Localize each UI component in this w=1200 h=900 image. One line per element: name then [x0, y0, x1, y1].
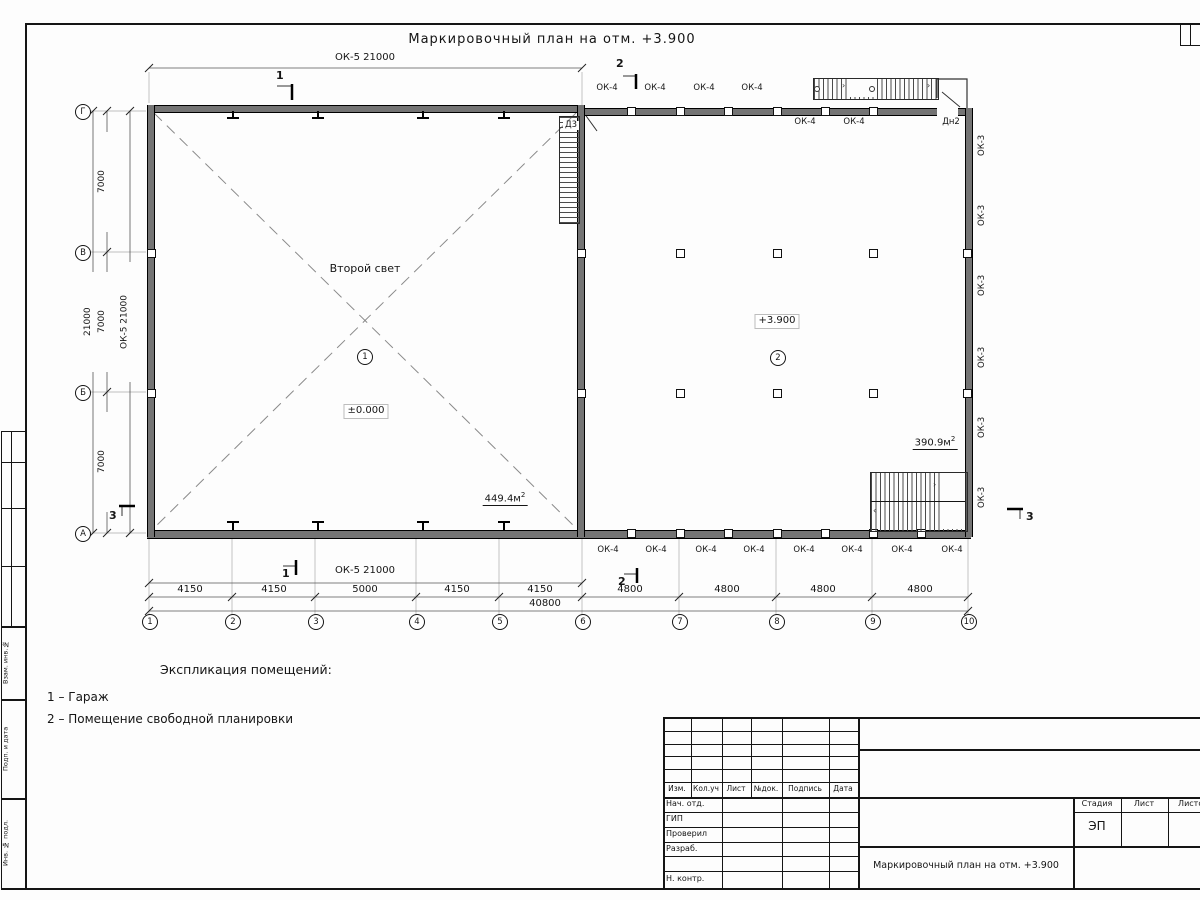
- titleblock-line: [782, 717, 783, 890]
- room2-level: +3.900: [754, 314, 799, 329]
- mullion-square: [676, 529, 685, 538]
- column-square: [577, 249, 586, 258]
- stair-external-top: [813, 78, 939, 100]
- stair-direction-arrow: ‹: [873, 507, 876, 515]
- dim-bay: 4800: [808, 585, 837, 595]
- titleblock-col-list: Лист: [726, 785, 745, 793]
- window-label-ok4: ОК-4: [843, 118, 864, 127]
- axis-bubble-col: 2: [225, 614, 241, 630]
- window-label-ok3: ОК-3: [976, 195, 988, 235]
- room1-area-sup: 2: [521, 491, 525, 499]
- column-mark: [312, 521, 324, 523]
- wall-top-right: [583, 108, 937, 116]
- titleblock-line: [1073, 797, 1075, 890]
- window-label-ok4: ОК-4: [597, 546, 618, 555]
- column-mark: [232, 523, 234, 530]
- frame-strip-line: [1, 431, 25, 432]
- mullion-square: [821, 529, 830, 538]
- column-mark: [227, 117, 239, 119]
- axis-bubble-col: 6: [575, 614, 591, 630]
- window-label-ok4: ОК-4: [741, 84, 762, 93]
- room1-note: Второй свет: [330, 263, 401, 274]
- titleblock-col-data: Дата: [833, 785, 852, 793]
- column-square: [963, 249, 972, 258]
- titleblock-line: [751, 717, 752, 797]
- mullion-square: [773, 529, 782, 538]
- window-label-ok3: ОК-3: [976, 407, 988, 447]
- room1-number-bubble: 1: [357, 349, 373, 365]
- section-mark-3: 3: [1026, 511, 1034, 522]
- column-square: [147, 249, 156, 258]
- plan-linework: [0, 0, 1200, 900]
- stair-flight-divider: [871, 501, 965, 502]
- frame-bottom-border: [1, 888, 1200, 890]
- column-mark: [498, 117, 510, 119]
- column-square: [773, 249, 782, 258]
- titleblock-line: [1121, 797, 1122, 846]
- titleblock-stage-col: Стадия: [1082, 800, 1113, 808]
- axis-bubble-row: В: [75, 245, 91, 261]
- legend-heading: Экспликация помещений:: [160, 664, 332, 677]
- room1-area: 449.4м2: [483, 491, 528, 506]
- titleblock-line: [858, 749, 1200, 751]
- titleblock-line: [858, 846, 1200, 848]
- titleblock-role: Нач. отд.: [666, 800, 704, 808]
- titleblock-line: [1168, 797, 1169, 846]
- room2-area-sup: 2: [951, 435, 955, 443]
- column-square: [963, 389, 972, 398]
- stair-direction-arrow: ›: [933, 481, 936, 489]
- axis-bubble-col: 8: [769, 614, 785, 630]
- column-mark: [227, 521, 239, 523]
- titleblock-role: Проверил: [666, 830, 707, 838]
- frame-strip-line: [1, 508, 25, 509]
- column-mark: [498, 521, 510, 523]
- corner-cell-line: [1180, 45, 1200, 46]
- axis-bubble-col: 10: [961, 614, 977, 630]
- column-mark: [417, 521, 429, 523]
- dim-top-ok5: ОК-5 21000: [333, 53, 397, 63]
- room2-area-value: 390.9м: [915, 437, 951, 448]
- window-label-ok4: ОК-4: [596, 84, 617, 93]
- frame-strip-line: [1, 566, 25, 567]
- window-label-ok4: ОК-4: [891, 546, 912, 555]
- room1-area-value: 449.4м: [485, 493, 521, 504]
- door-label-d3: Д3: [563, 121, 579, 130]
- mullion-square: [869, 107, 878, 116]
- frame-label-podp-data: Подп. и дата: [0, 700, 11, 797]
- column-square: [147, 389, 156, 398]
- mullion-square: [724, 529, 733, 538]
- titleblock-col-podpis: Подпись: [788, 785, 822, 793]
- dim-left-ok5: ОК-5 21000: [116, 262, 133, 382]
- dim-bay: 5000: [350, 585, 379, 595]
- section-mark-3: 3: [109, 510, 117, 521]
- axis-bubble-col: 9: [865, 614, 881, 630]
- stair-start-circle: [814, 86, 820, 92]
- frame-strip-line: [1, 462, 25, 463]
- window-label-ok3: ОК-3: [976, 337, 988, 377]
- titleblock-line: [663, 717, 1200, 719]
- wall-bottom: [147, 530, 971, 539]
- stair-internal-mid: [559, 116, 580, 224]
- door-label-dn2: Дн2: [942, 118, 960, 127]
- stair-direction-arrow: ›: [927, 82, 930, 90]
- drawing-sheet: { "sheet": { "title": "Маркировочный пла…: [0, 0, 1200, 900]
- axis-bubble-col: 1: [142, 614, 158, 630]
- room2-area: 390.9м2: [913, 435, 958, 450]
- window-label-ok4: ОК-4: [743, 546, 764, 555]
- column-mark: [417, 117, 429, 119]
- section-mark-1: 1: [282, 568, 290, 579]
- sheet-title: Маркировочный план на отм. +3.900: [408, 33, 695, 46]
- titleblock-role: Н. контр.: [666, 875, 704, 883]
- room1-level: ±0.000: [343, 404, 388, 419]
- axis-bubble-col: 3: [308, 614, 324, 630]
- axis-bubble-col: 4: [409, 614, 425, 630]
- window-label-ok4: ОК-4: [693, 84, 714, 93]
- stair-start-circle: [869, 86, 875, 92]
- stair-direction-arrow: ›: [842, 82, 845, 90]
- dim-bottom-ok5: ОК-5 21000: [333, 566, 397, 576]
- frame-label-vzam-inv: Взам. инв.№: [0, 627, 11, 698]
- window-label-ok3: ОК-3: [976, 477, 988, 517]
- corner-cell-line: [1180, 23, 1181, 45]
- axis-bubble-row: Б: [75, 385, 91, 401]
- section-mark-1: 1: [276, 70, 284, 81]
- window-label-ok3: ОК-3: [976, 125, 988, 165]
- dim-bay: 4800: [712, 585, 741, 595]
- titleblock-stage-value: ЭП: [1088, 820, 1105, 832]
- frame-left-border: [25, 23, 27, 890]
- axis-bubble-col: 5: [492, 614, 508, 630]
- column-square: [676, 249, 685, 258]
- titleblock-line: [663, 717, 665, 890]
- wall-left: [147, 105, 155, 537]
- titleblock-line: [663, 797, 1200, 799]
- dim-bay: 4150: [525, 585, 554, 595]
- dim-bay: 4150: [175, 585, 204, 595]
- titleblock-role: ГИП: [666, 815, 683, 823]
- window-label-ok4: ОК-4: [793, 546, 814, 555]
- titleblock-doc-title: Маркировочный план на отм. +3.900: [873, 861, 1059, 871]
- dim-bay: 4150: [259, 585, 288, 595]
- dim-bay: 4800: [905, 585, 934, 595]
- mullion-square: [627, 529, 636, 538]
- axis-bubble-row: Г: [75, 104, 91, 120]
- frame-side-strip-divider: [11, 431, 12, 626]
- column-square: [577, 389, 586, 398]
- column-square: [676, 389, 685, 398]
- titleblock-role: Разраб.: [666, 845, 697, 853]
- column-square: [869, 249, 878, 258]
- titleblock-sheet-col: Лист: [1134, 800, 1154, 808]
- titleblock-line: [1073, 812, 1200, 813]
- wall-top-left: [147, 105, 583, 113]
- axis-bubble-row: А: [75, 526, 91, 542]
- titleblock-col-ndok: №док.: [754, 785, 779, 793]
- column-mark: [317, 523, 319, 530]
- section-mark-2: 2: [616, 58, 624, 69]
- dim-left-7000: 7000: [94, 412, 110, 512]
- column-square: [869, 389, 878, 398]
- column-square: [773, 389, 782, 398]
- titleblock-sheets-col: Листов: [1178, 800, 1200, 808]
- room2-number-bubble: 2: [770, 350, 786, 366]
- window-label-ok4: ОК-4: [645, 546, 666, 555]
- dim-total: 40800: [527, 599, 563, 609]
- corner-cell-line: [1190, 23, 1191, 45]
- titleblock-col-koluch: Кол.уч: [693, 785, 719, 793]
- dim-left-7000: 7000: [94, 272, 110, 372]
- titleblock-line: [722, 717, 723, 890]
- window-label-ok4: ОК-4: [644, 84, 665, 93]
- frame-label-inv-podl: Инв. № подл.: [0, 799, 11, 887]
- window-label-ok4: ОК-4: [794, 118, 815, 127]
- mullion-square: [724, 107, 733, 116]
- axis-bubble-col: 7: [672, 614, 688, 630]
- titleblock-line: [858, 717, 860, 890]
- legend-item: 2 – Помещение свободной планировки: [47, 713, 293, 725]
- dim-bay: 4800: [615, 585, 644, 595]
- column-mark: [422, 523, 424, 530]
- legend-item: 1 – Гараж: [47, 691, 109, 703]
- column-mark: [503, 523, 505, 530]
- mullion-square: [773, 107, 782, 116]
- window-label-ok4: ОК-4: [941, 546, 962, 555]
- dim-bay: 4150: [442, 585, 471, 595]
- frame-top-border: [25, 23, 1200, 25]
- titleblock-line: [829, 717, 830, 890]
- window-label-ok4: ОК-4: [695, 546, 716, 555]
- mullion-square: [676, 107, 685, 116]
- column-mark: [312, 117, 324, 119]
- dim-left-7000: 7000: [94, 132, 110, 232]
- window-label-ok4: ОК-4: [841, 546, 862, 555]
- window-label-ok3: ОК-3: [976, 265, 988, 305]
- mullion-square: [627, 107, 636, 116]
- titleblock-col-izm: Изм.: [668, 785, 686, 793]
- mullion-square: [821, 107, 830, 116]
- titleblock-line: [691, 717, 692, 797]
